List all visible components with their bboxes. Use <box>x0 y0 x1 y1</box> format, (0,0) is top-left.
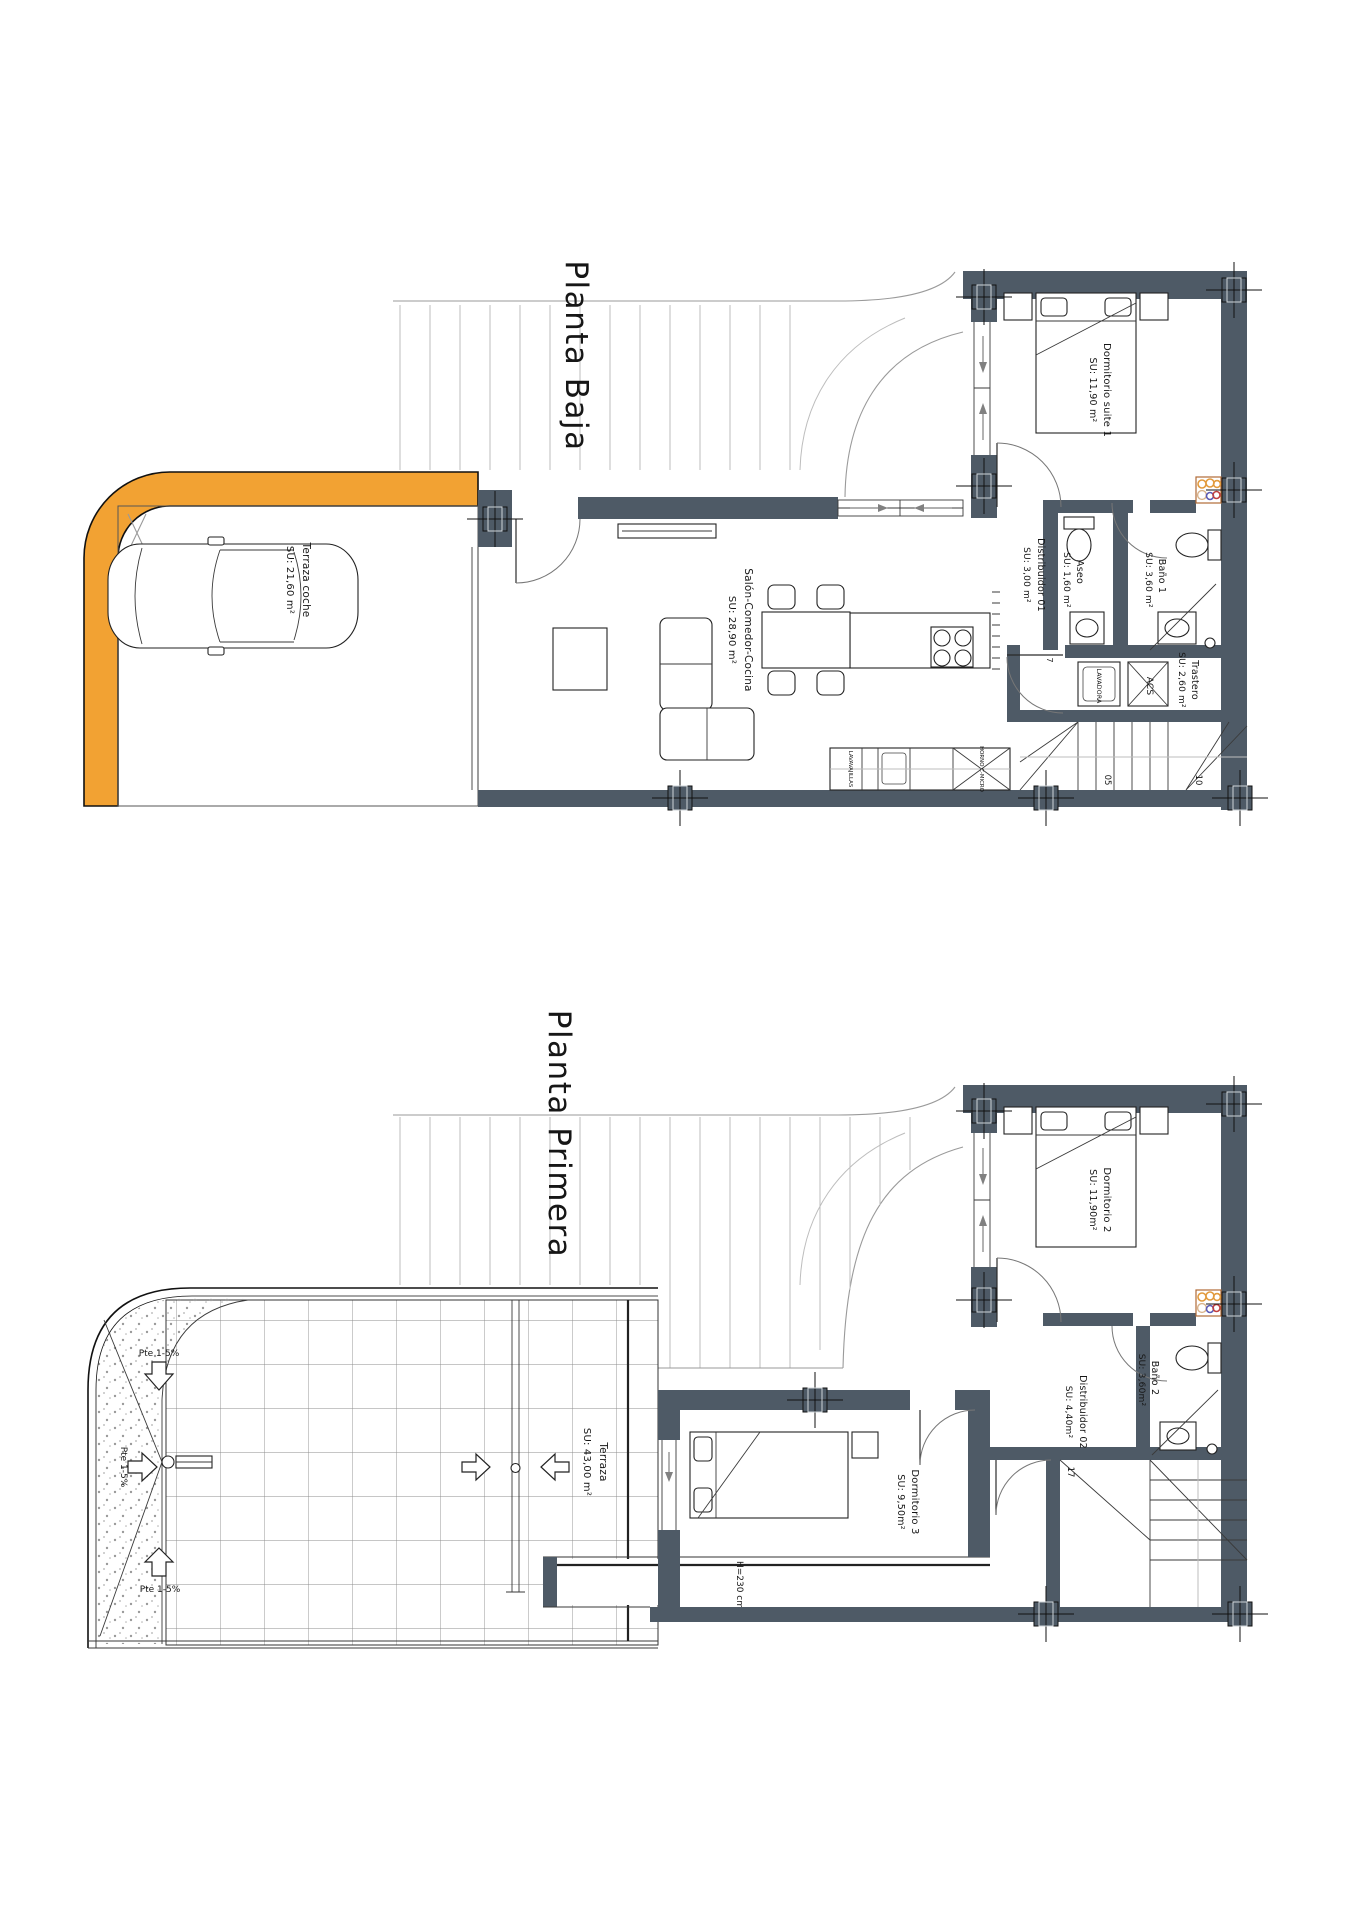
slope-label-bottom: Pte 1-5% <box>140 1585 181 1595</box>
planta-baja-plan: Terraza coche SU: 21,60 m² <box>84 260 1268 826</box>
car-icon <box>108 537 358 655</box>
room-area-trastero: SU: 2,60 m² <box>1176 652 1186 708</box>
room-label-hall02: Distribuidor 02 <box>1077 1375 1088 1449</box>
washer-label: LAVADORA <box>1095 668 1102 704</box>
sink-bath2 <box>1160 1422 1196 1450</box>
dishwasher-label: LAVAVAJILLAS <box>847 751 853 788</box>
kitchen-island <box>850 592 1000 669</box>
window-bedroom3 <box>662 1440 676 1530</box>
coffee-table <box>553 628 607 690</box>
room-label-trastero: Trastero <box>1189 659 1200 700</box>
covered-strip: H=230 cm <box>543 1557 990 1609</box>
stair-number: 7 <box>1045 657 1054 662</box>
window-bedroom2 <box>974 1133 990 1267</box>
walls-primera <box>650 1085 1247 1622</box>
room-area-aseo: SU: 1,60 m² <box>1061 552 1071 608</box>
plan-title-primera: Planta Primera <box>541 1010 577 1258</box>
floor-plan-sheet: Terraza coche SU: 21,60 m² <box>0 0 1357 1920</box>
room-area-bath1: SU: 3,60 m² <box>1143 552 1153 608</box>
toilet-bath2 <box>1176 1343 1221 1373</box>
room-area-carport: SU: 21,60 m² <box>284 546 295 614</box>
toilet-bath1 <box>1176 530 1221 560</box>
window-bedroom1 <box>974 322 990 455</box>
dining-set <box>762 585 850 695</box>
room-label-living: Salón-Comedor-Cocina <box>742 568 754 691</box>
acs-unit: ACS <box>1128 662 1168 706</box>
planta-primera-plan: Pte 1-5% Pte 1-5% Pte 1-5% Terraza SU: 4… <box>88 1010 1268 1648</box>
washing-machine: LAVADORA <box>1078 662 1120 706</box>
drain <box>162 1456 174 1468</box>
street-paving <box>393 272 963 497</box>
nightstand <box>1140 293 1168 320</box>
nightstand <box>1140 1107 1168 1134</box>
room-area-bedroom2: SU: 11,90m² <box>1087 1169 1098 1231</box>
room-area-suite: SU: 11,90 m² <box>1087 358 1098 423</box>
room-label-hall01: Distribuidor 01 <box>1035 538 1046 612</box>
room-label-bedroom3: Dormitorio 3 <box>909 1469 920 1534</box>
room-area-bedroom3: SU: 9,50m² <box>895 1474 906 1529</box>
room-area-hall02: SU: 4,40m² <box>1063 1386 1073 1439</box>
room-label-bath2: Baño 2 <box>1149 1361 1160 1395</box>
height-note: H=230 cm <box>734 1561 744 1609</box>
kitchen-cabinets: LAVAVAJILLAS HORNO C-MICRO <box>830 746 1010 792</box>
floor-plans-drawing: Terraza coche SU: 21,60 m² <box>0 0 1357 1920</box>
doors-primera <box>920 1258 1167 1515</box>
stair-number: 17 <box>1065 1467 1075 1478</box>
room-area-terrace: SU: 43,00 m² <box>581 1428 592 1496</box>
stair-number: 05 <box>1102 775 1112 786</box>
acs-label: ACS <box>1144 677 1154 696</box>
stairs-primera: 17 <box>1060 1460 1247 1607</box>
room-area-bath2: SU: 3,60m² <box>1136 1354 1146 1407</box>
plan-title-baja: Planta Baja <box>558 260 594 451</box>
room-label-carport: Terraza coche <box>300 542 312 618</box>
room-label-aseo: Aseo <box>1074 560 1085 584</box>
room-label-suite: Dormitorio suite 1 <box>1101 343 1112 437</box>
slope-label-top: Pte 1-5% <box>139 1349 180 1359</box>
carport: Terraza coche SU: 21,60 m² <box>84 472 478 806</box>
room-label-bedroom2: Dormitorio 2 <box>1101 1167 1112 1232</box>
tv-sideboard <box>618 524 716 538</box>
room-area-hall01: SU: 3,00 m² <box>1021 547 1031 603</box>
bed-bedroom3 <box>690 1432 878 1518</box>
sliding-window-living <box>838 500 963 516</box>
stair-number: 10 <box>1193 775 1203 786</box>
room-label-bath1: Baño 1 <box>1156 559 1167 593</box>
sink-aseo <box>1070 612 1104 644</box>
oven-label: HORNO C-MICRO <box>978 746 984 792</box>
sofa <box>660 618 754 760</box>
sink-bath1 <box>1158 612 1196 644</box>
room-label-terrace: Terraza <box>597 1441 609 1481</box>
room-area-living: SU: 28,90 m² <box>726 596 737 664</box>
slope-label-middle: Pte 1-5% <box>118 1447 128 1488</box>
